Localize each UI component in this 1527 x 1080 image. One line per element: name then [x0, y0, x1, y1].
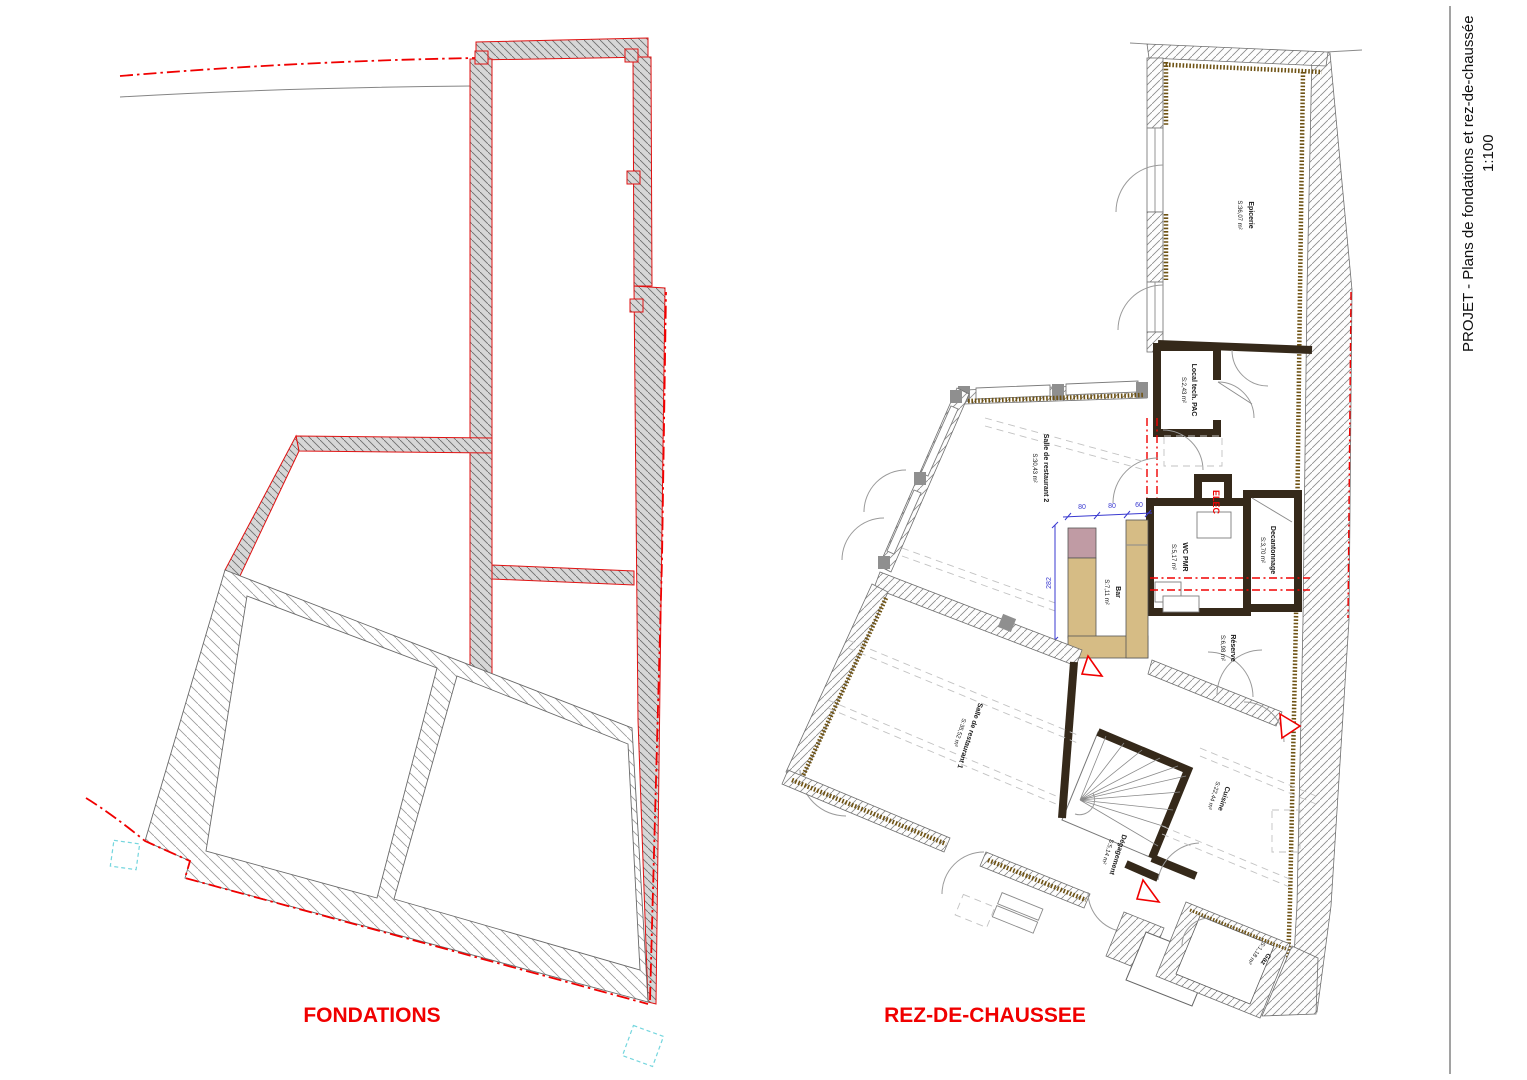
room-name: Réserve	[1229, 634, 1236, 661]
rdc-title: REZ-DE-CHAUSSEE	[884, 1004, 1086, 1027]
room-area: S:6,98 m²	[1219, 635, 1225, 661]
room-name: Salle de restaurant 2	[1042, 434, 1049, 503]
foundations-title: FONDATIONS	[303, 1004, 440, 1027]
local-tech-walls	[1157, 347, 1217, 433]
plans-canvas: FONDATIONS	[0, 0, 1527, 1080]
room-name: Decantonnage	[1269, 526, 1276, 574]
door-opening	[1213, 380, 1223, 420]
wall-post	[950, 390, 962, 403]
bar-counter-tan	[1126, 520, 1148, 658]
dimension-value: 282	[1046, 577, 1053, 589]
dimension-value: 60	[1135, 502, 1143, 509]
room-area: S:2,43 m²	[1180, 377, 1186, 403]
room-area: S:7,11 m²	[1103, 579, 1109, 605]
project-title: PROJET - Plans de fondations et rez-de-c…	[1460, 15, 1477, 352]
bar-counter-mauve	[1068, 528, 1096, 558]
elec-label: ELEC	[1211, 490, 1221, 515]
wall-epicerie-west	[1147, 58, 1163, 128]
window	[976, 385, 1050, 399]
room-name: WC PMR	[1181, 542, 1188, 571]
drawing-sheet: FONDATIONS	[0, 0, 1527, 1080]
bar-counter-tan	[1068, 558, 1096, 638]
room-name: Bar	[1114, 586, 1121, 598]
column	[630, 299, 643, 312]
column	[625, 49, 638, 62]
wc-fixture	[1163, 596, 1199, 612]
room-name: Local tech. PAC	[1190, 364, 1197, 417]
scale-label: 1:100	[1480, 134, 1497, 172]
column	[475, 51, 488, 64]
room-area: S:5,17 m²	[1170, 544, 1176, 570]
wall-post	[914, 472, 926, 485]
wall-middle	[296, 436, 492, 453]
window	[1066, 381, 1138, 395]
room-name: Epicerie	[1247, 201, 1254, 228]
room-area: S:30,43 m²	[1031, 453, 1037, 482]
dimension-value: 80	[1078, 504, 1086, 511]
dimension-value: 80	[1108, 503, 1116, 510]
wall-post	[878, 556, 890, 569]
column	[627, 171, 640, 184]
room-area: S:3,70 m²	[1259, 537, 1265, 563]
wall-top	[476, 38, 648, 60]
room-area: S:36,07 m²	[1236, 200, 1242, 229]
wall-west	[470, 59, 492, 676]
wall-epicerie-west	[1147, 212, 1163, 282]
wc-fixture	[1197, 512, 1231, 538]
